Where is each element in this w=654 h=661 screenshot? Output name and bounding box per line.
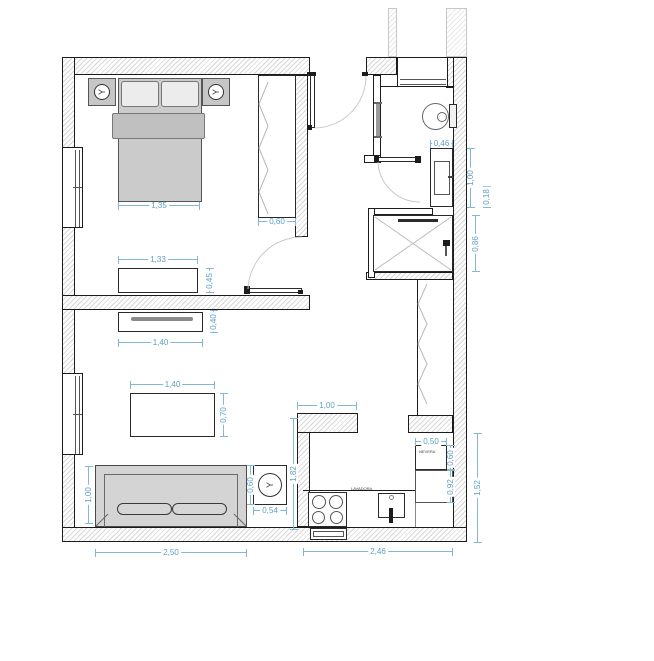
dim-shower-width: 0,86 <box>475 215 476 272</box>
dim-bath-sink-length: 1,00 <box>470 148 471 208</box>
shower-tray-cross <box>375 217 451 270</box>
dim-fridge-width: 0,50 <box>415 441 447 442</box>
dim-coffee-table-width: 1,40 <box>130 384 215 385</box>
dim-bath-ledge: 0,18 <box>486 186 487 208</box>
toilet-door-swing-arc <box>378 162 420 202</box>
dim-kitchen-entry: 1,00 <box>297 405 357 406</box>
dim-living-right-clearance: 1,82 <box>293 418 294 530</box>
floor-plan: Y Y Y LAVADORA NEVERA <box>0 0 654 661</box>
dim-kitchen-right-depth: 1,52 <box>477 433 478 543</box>
entry-door-swing-arc <box>315 76 366 128</box>
dim-sofa-depth: 1,00 <box>88 466 89 524</box>
dim-tv-unit-depth: 0,40 <box>213 310 214 333</box>
sofa-arm-corner-lines <box>96 514 246 526</box>
wardrobe-hanging-rail-zigzag <box>259 82 268 214</box>
dim-dresser-depth: 0,45 <box>209 268 210 293</box>
dim-kitchen-width: 2,46 <box>303 551 453 552</box>
dim-dresser-width: 1,33 <box>118 259 198 260</box>
dim-fridge-depth: 0,60 <box>450 445 451 470</box>
dim-bath-sink-width: 0,46 <box>430 143 453 144</box>
dim-side-table-depth: 0,60 <box>250 465 251 505</box>
dim-wardrobe-depth: 0,60 <box>258 221 296 222</box>
annotation-overlay <box>0 0 654 661</box>
hall-closet-hanging-rail-zigzag <box>418 284 427 404</box>
dim-coffee-table-depth: 0,70 <box>223 393 224 437</box>
dim-side-table-width: 0,54 <box>253 510 287 511</box>
dim-bed-width: 1,35 <box>118 205 200 206</box>
dim-tv-unit-width: 1,40 <box>118 342 203 343</box>
bedroom-door-swing-arc <box>248 237 302 289</box>
dim-counter-run: 0,92 <box>450 470 451 503</box>
dim-sofa-width: 2,50 <box>95 552 247 553</box>
